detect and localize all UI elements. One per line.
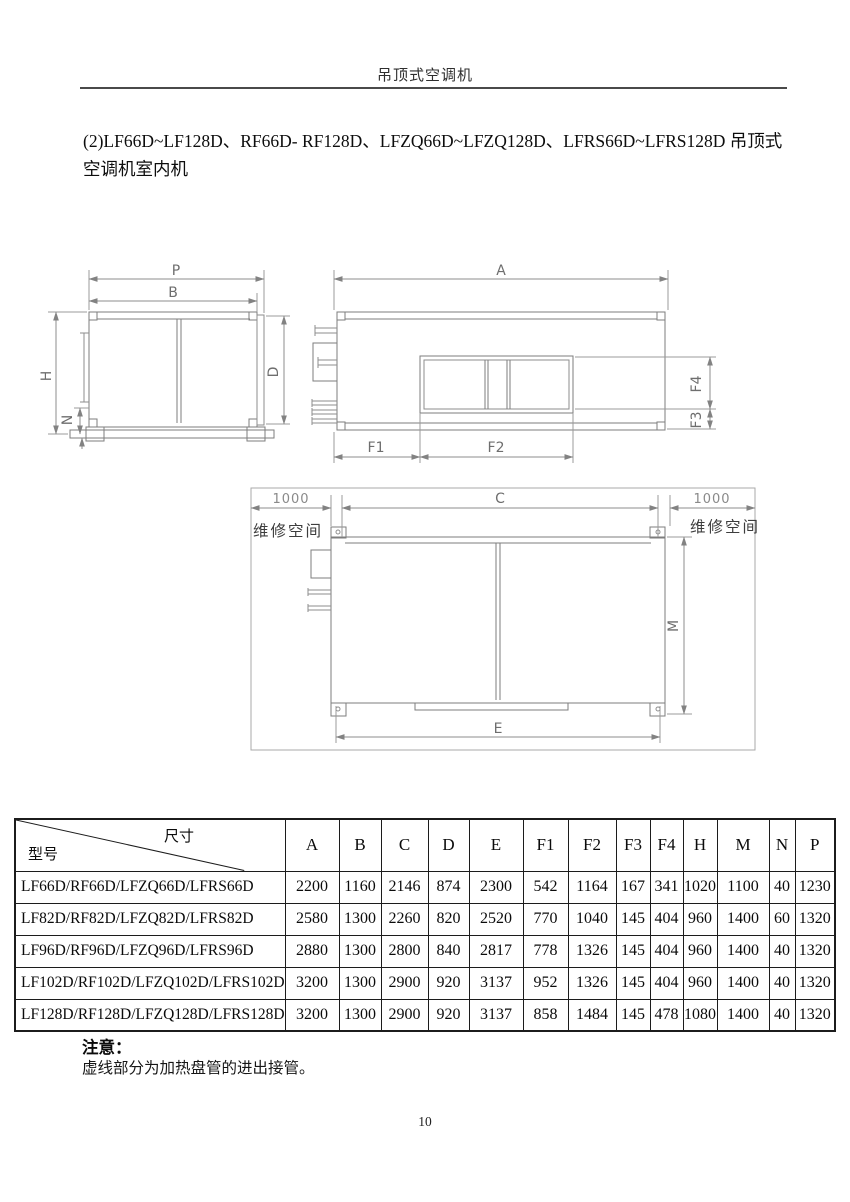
col-header-e: E	[469, 819, 523, 871]
value-cell: 2817	[469, 935, 523, 967]
value-cell: 1040	[568, 903, 616, 935]
col-header-f1: F1	[523, 819, 568, 871]
bottom-view-unit-outline	[308, 527, 665, 716]
front-view-drawing: A F1 F2 F4 F3	[312, 263, 716, 463]
value-cell: 1320	[795, 967, 835, 999]
clearance-left-label: 1000	[272, 492, 309, 507]
value-cell: 1100	[717, 871, 769, 903]
dim-label-c: C	[495, 491, 505, 507]
dim-label-a: A	[496, 263, 506, 279]
value-cell: 1320	[795, 999, 835, 1031]
value-cell: 2300	[469, 871, 523, 903]
dim-label-d: D	[266, 367, 282, 378]
value-cell: 1400	[717, 999, 769, 1031]
value-cell: 1484	[568, 999, 616, 1031]
dim-label-p: P	[172, 263, 180, 279]
dim-label-f1: F1	[368, 440, 385, 456]
col-header-p: P	[795, 819, 835, 871]
value-cell: 2260	[381, 903, 428, 935]
dim-label-n: N	[60, 415, 76, 425]
value-cell: 874	[428, 871, 469, 903]
value-cell: 2580	[285, 903, 339, 935]
value-cell: 2200	[285, 871, 339, 903]
value-cell: 1230	[795, 871, 835, 903]
table-header-row: 尺寸 型号 A B C D E F1 F2 F3 F4 H M N P	[15, 819, 835, 871]
col-header-a: A	[285, 819, 339, 871]
value-cell: 960	[683, 967, 717, 999]
value-cell: 341	[650, 871, 683, 903]
model-cell: LF128D/RF128D/LFZQ128D/LFRS128D	[15, 999, 285, 1031]
value-cell: 145	[616, 999, 650, 1031]
value-cell: 778	[523, 935, 568, 967]
value-cell: 1320	[795, 935, 835, 967]
dim-label-f4: F4	[689, 375, 705, 392]
technical-drawings: P B H N D	[0, 240, 850, 770]
value-cell: 1400	[717, 903, 769, 935]
col-header-n: N	[769, 819, 795, 871]
col-header-f4: F4	[650, 819, 683, 871]
value-cell: 3137	[469, 999, 523, 1031]
value-cell: 404	[650, 935, 683, 967]
bottom-view-drawing: 1000 C 1000 维修空间 维修空间 M E	[251, 488, 760, 750]
note-label: 注意：	[82, 1034, 132, 1058]
dim-label-h: H	[39, 371, 55, 382]
value-cell: 960	[683, 935, 717, 967]
service-space-left-label: 维修空间	[253, 522, 323, 540]
value-cell: 820	[428, 903, 469, 935]
value-cell: 404	[650, 967, 683, 999]
table-row: LF102D/RF102D/LFZQ102D/LFRS102D 3200 130…	[15, 967, 835, 999]
table-row: LF96D/RF96D/LFZQ96D/LFRS96D 2880 1300 28…	[15, 935, 835, 967]
value-cell: 542	[523, 871, 568, 903]
col-header-m: M	[717, 819, 769, 871]
value-cell: 2900	[381, 967, 428, 999]
value-cell: 1400	[717, 967, 769, 999]
header-rule	[80, 87, 787, 89]
value-cell: 478	[650, 999, 683, 1031]
value-cell: 920	[428, 967, 469, 999]
value-cell: 60	[769, 903, 795, 935]
table-row: LF66D/RF66D/LFZQ66D/LFRS66D 2200 1160 21…	[15, 871, 835, 903]
value-cell: 40	[769, 935, 795, 967]
value-cell: 770	[523, 903, 568, 935]
col-header-f3: F3	[616, 819, 650, 871]
note-text: 虚线部分为加热盘管的进出接管。	[82, 1056, 315, 1078]
value-cell: 1300	[339, 935, 381, 967]
value-cell: 858	[523, 999, 568, 1031]
clearance-right-label: 1000	[693, 492, 730, 507]
side-view-unit-outline	[70, 312, 274, 441]
value-cell: 1300	[339, 999, 381, 1031]
model-cell: LF82D/RF82D/LFZQ82D/LFRS82D	[15, 903, 285, 935]
value-cell: 145	[616, 935, 650, 967]
dim-label-b: B	[168, 285, 178, 301]
model-range-paragraph: (2)LF66D~LF128D、RF66D- RF128D、LFZQ66D~LF…	[83, 127, 798, 184]
value-cell: 40	[769, 999, 795, 1031]
value-cell: 952	[523, 967, 568, 999]
value-cell: 145	[616, 967, 650, 999]
front-view-unit-outline	[313, 312, 665, 430]
value-cell: 145	[616, 903, 650, 935]
model-cell: LF66D/RF66D/LFZQ66D/LFRS66D	[15, 871, 285, 903]
corner-label-model: 型号	[28, 843, 58, 864]
document-page: { "header": { "title": "吊顶式空调机" }, "intr…	[0, 0, 850, 1202]
value-cell: 40	[769, 967, 795, 999]
value-cell: 960	[683, 903, 717, 935]
value-cell: 1080	[683, 999, 717, 1031]
col-header-d: D	[428, 819, 469, 871]
value-cell: 2880	[285, 935, 339, 967]
value-cell: 920	[428, 999, 469, 1031]
value-cell: 1326	[568, 967, 616, 999]
front-view-dimensions: A F1 F2 F4 F3	[334, 263, 716, 463]
col-header-h: H	[683, 819, 717, 871]
value-cell: 3200	[285, 967, 339, 999]
table-row: LF128D/RF128D/LFZQ128D/LFRS128D 3200 130…	[15, 999, 835, 1031]
corner-label-size: 尺寸	[164, 825, 194, 846]
value-cell: 1164	[568, 871, 616, 903]
dimension-table: 尺寸 型号 A B C D E F1 F2 F3 F4 H M N P LF66…	[14, 818, 836, 1032]
model-cell: LF102D/RF102D/LFZQ102D/LFRS102D	[15, 967, 285, 999]
value-cell: 840	[428, 935, 469, 967]
value-cell: 2520	[469, 903, 523, 935]
value-cell: 2800	[381, 935, 428, 967]
dim-label-f2: F2	[488, 440, 505, 456]
col-header-b: B	[339, 819, 381, 871]
value-cell: 1320	[795, 903, 835, 935]
service-space-border	[251, 488, 755, 750]
value-cell: 3137	[469, 967, 523, 999]
value-cell: 1400	[717, 935, 769, 967]
side-view-dimensions: P B H N D	[39, 263, 290, 449]
page-header-title: 吊顶式空调机	[0, 64, 850, 85]
table-corner-cell: 尺寸 型号	[15, 819, 285, 871]
value-cell: 1300	[339, 967, 381, 999]
value-cell: 3200	[285, 999, 339, 1031]
model-cell: LF96D/RF96D/LFZQ96D/LFRS96D	[15, 935, 285, 967]
side-view-drawing: P B H N D	[39, 263, 290, 449]
heating-pipe-stubs	[312, 325, 337, 425]
page-number: 10	[0, 1114, 850, 1130]
table-row: LF82D/RF82D/LFZQ82D/LFRS82D 2580 1300 22…	[15, 903, 835, 935]
value-cell: 1300	[339, 903, 381, 935]
col-header-c: C	[381, 819, 428, 871]
value-cell: 2900	[381, 999, 428, 1031]
value-cell: 40	[769, 871, 795, 903]
dim-label-e: E	[494, 721, 503, 737]
value-cell: 167	[616, 871, 650, 903]
service-space-right-label: 维修空间	[690, 518, 760, 536]
value-cell: 1160	[339, 871, 381, 903]
bottom-view-dimensions: 1000 C 1000 维修空间 维修空间 M E	[251, 491, 760, 743]
value-cell: 1020	[683, 871, 717, 903]
value-cell: 404	[650, 903, 683, 935]
value-cell: 1326	[568, 935, 616, 967]
dim-label-f3: F3	[689, 412, 705, 429]
value-cell: 2146	[381, 871, 428, 903]
dim-label-m: M	[666, 620, 682, 632]
col-header-f2: F2	[568, 819, 616, 871]
